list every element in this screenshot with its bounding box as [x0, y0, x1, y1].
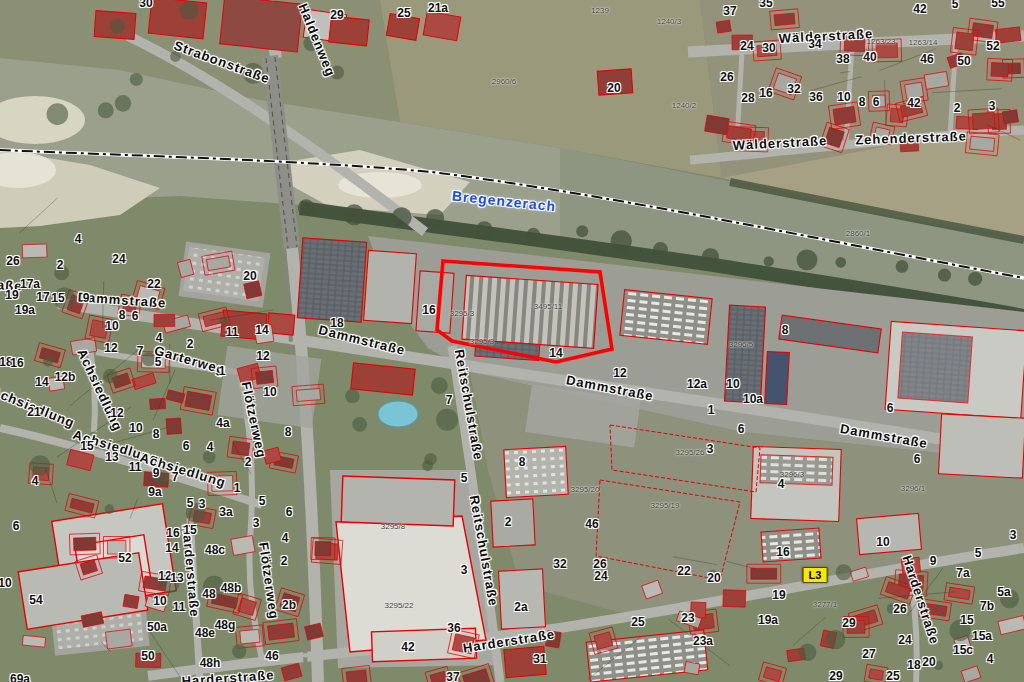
aerial-basemap [0, 0, 1024, 682]
map-viewport[interactable]: L3 StrabonstraßeHaldenwegWälderstraßeWäl… [0, 0, 1024, 682]
